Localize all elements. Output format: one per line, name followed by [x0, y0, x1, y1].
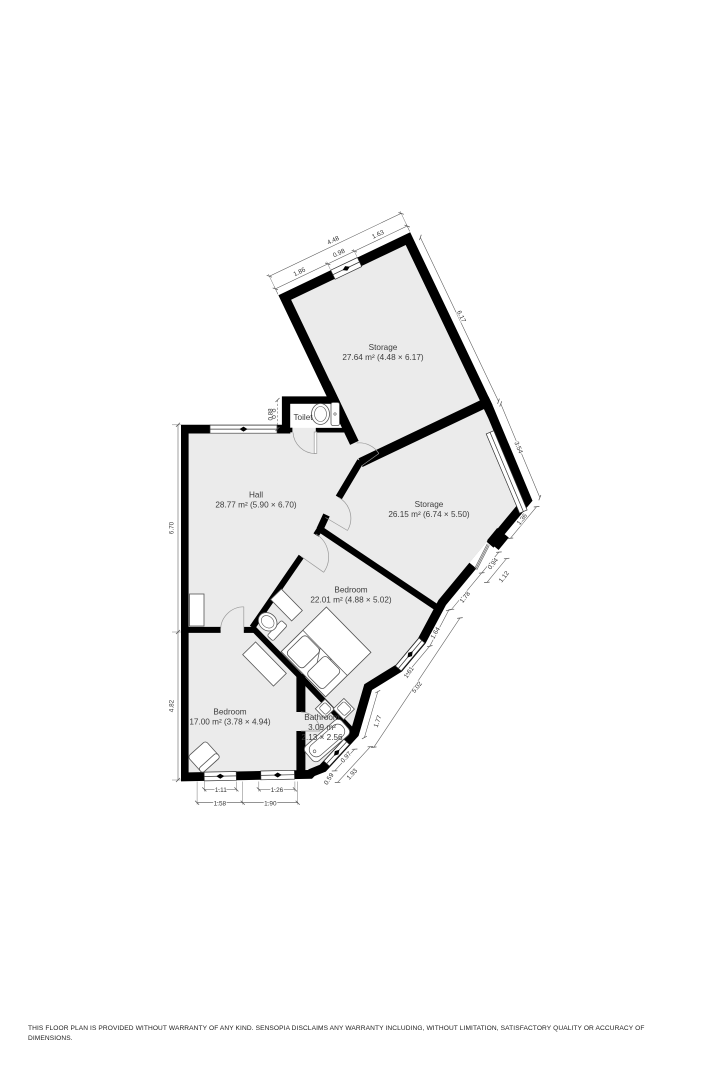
svg-text:22.01 m² (4.88 × 5.02): 22.01 m² (4.88 × 5.02): [310, 596, 392, 605]
svg-text:1.11: 1.11: [215, 787, 227, 794]
svg-text:1.90: 1.90: [264, 801, 277, 808]
svg-text:0.88: 0.88: [268, 408, 275, 421]
svg-text:28.77 m² (5.90 × 6.70): 28.77 m² (5.90 × 6.70): [215, 501, 297, 510]
svg-text:THIS FLOOR PLAN IS PROVIDED WI: THIS FLOOR PLAN IS PROVIDED WITHOUT WARR…: [28, 1025, 644, 1032]
svg-text:27.64 m² (4.48 × 6.17): 27.64 m² (4.48 × 6.17): [342, 353, 424, 362]
svg-text:1.26: 1.26: [271, 787, 284, 794]
svg-text:4.82: 4.82: [169, 699, 176, 712]
svg-text:Bedroom: Bedroom: [334, 586, 367, 595]
svg-text:6.70: 6.70: [169, 521, 176, 534]
svg-text:3.09 m²: 3.09 m²: [308, 723, 336, 732]
svg-text:2.13 × 2.56: 2.13 × 2.56: [301, 733, 343, 742]
svg-text:Storage: Storage: [369, 343, 398, 352]
svg-text:Bathroom: Bathroom: [304, 713, 340, 722]
svg-text:DIMENSIONS.: DIMENSIONS.: [28, 1035, 73, 1042]
svg-text:Bedroom: Bedroom: [213, 708, 246, 717]
svg-text:26.15 m² (6.74 × 5.50): 26.15 m² (6.74 × 5.50): [388, 510, 470, 519]
svg-text:1.58: 1.58: [214, 801, 227, 808]
svg-text:Storage: Storage: [415, 500, 444, 509]
svg-text:Hall: Hall: [249, 491, 263, 500]
svg-text:Toilet: Toilet: [293, 413, 313, 422]
svg-text:17.00 m² (3.78 × 4.94): 17.00 m² (3.78 × 4.94): [189, 718, 271, 727]
